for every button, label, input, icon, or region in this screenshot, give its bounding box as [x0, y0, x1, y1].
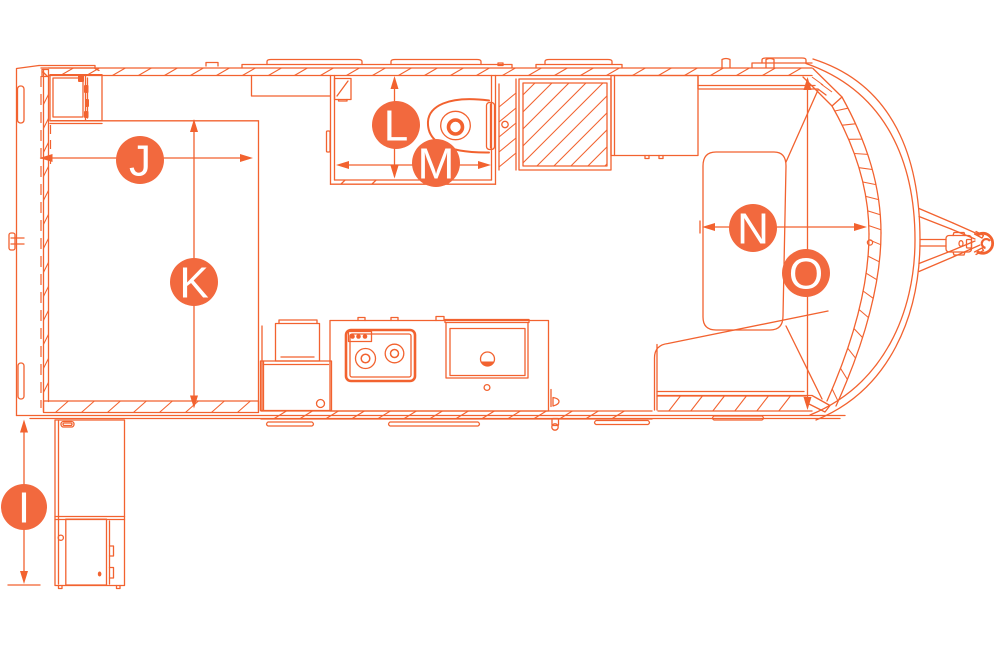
svg-text:L: L — [384, 102, 408, 151]
svg-text:M: M — [418, 140, 455, 189]
svg-text:N: N — [737, 205, 769, 254]
svg-text:O: O — [789, 250, 823, 299]
svg-text:J: J — [129, 137, 151, 186]
svg-text:K: K — [179, 259, 208, 308]
svg-text:I: I — [18, 484, 30, 533]
